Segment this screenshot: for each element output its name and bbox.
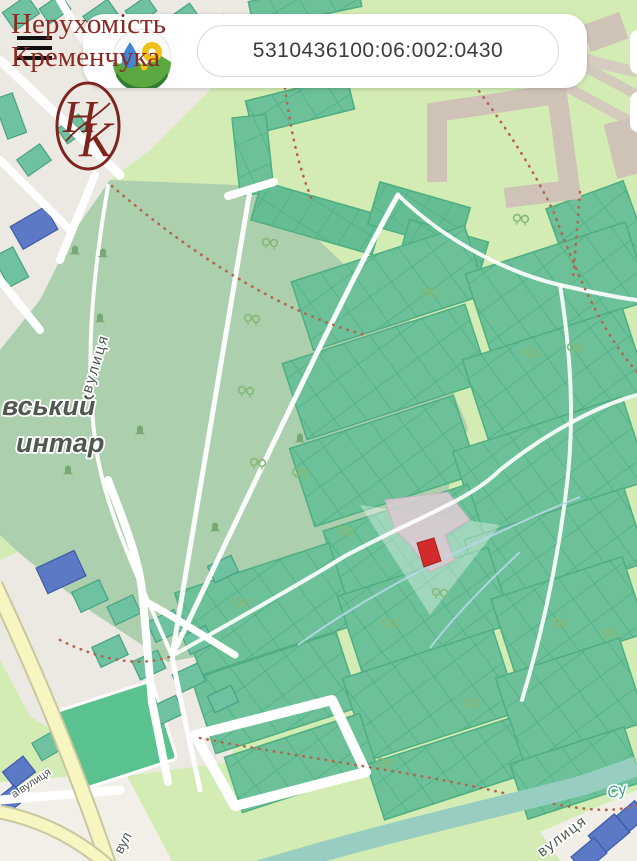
cemetery-label-line1: вський [2, 391, 96, 421]
emblem-monogram-letter2: К [78, 111, 115, 167]
search-input[interactable] [203, 38, 553, 64]
cemetery-label-line2: интар [16, 428, 104, 458]
search-field[interactable] [197, 25, 559, 77]
brand-title: Нерухомість Кременчука [11, 8, 166, 74]
map-app: вський интар вулиця вулиця а вулиця вул … [0, 0, 637, 861]
brand-emblem: Н К [52, 79, 124, 174]
brand-title-line2: Кременчука [11, 41, 166, 74]
brand-title-line1: Нерухомість [11, 8, 166, 41]
